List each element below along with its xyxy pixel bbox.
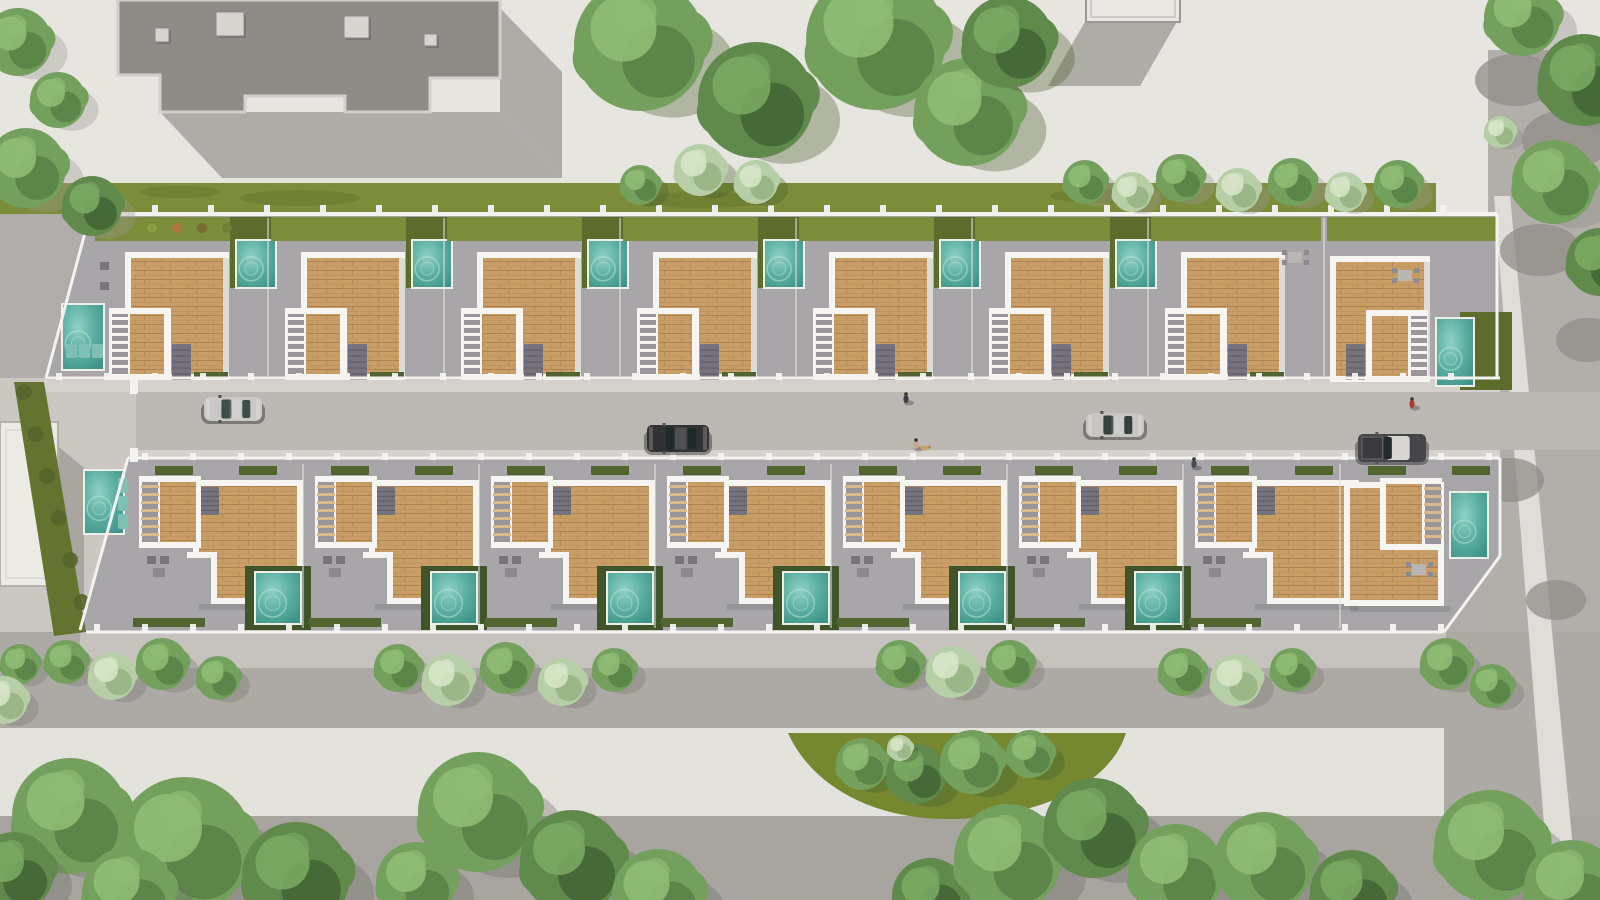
car-hood-highlight [1088, 415, 1092, 435]
tree-canopy-light [0, 840, 24, 864]
ladder-rung [1197, 493, 1215, 496]
ladder-rung [111, 317, 129, 320]
deck-shadow [575, 258, 581, 374]
ladder-rung [1424, 511, 1442, 514]
rooftop-box [216, 12, 244, 36]
truck-bed [1362, 437, 1382, 459]
fence-post [584, 373, 590, 380]
ladder-rung [493, 533, 511, 536]
fence-post [728, 373, 734, 380]
car-rear-window [688, 428, 696, 449]
car-trunk-highlight [1138, 415, 1142, 435]
patio-furniture [147, 556, 156, 564]
fence-post [1198, 453, 1204, 460]
fence-post [1104, 205, 1110, 212]
wing-deck [306, 314, 340, 374]
fence-post [286, 624, 292, 631]
tree-canopy-light [402, 850, 426, 874]
person-body [913, 441, 918, 449]
ladder-rung [669, 509, 687, 512]
fence-post [56, 373, 62, 380]
tree-canopy-light [642, 858, 670, 886]
fence-post [1208, 373, 1214, 380]
planting [197, 223, 207, 233]
ladder-rung [141, 533, 159, 536]
patio-furniture [1027, 556, 1036, 564]
ladder-rung [141, 509, 159, 512]
tree-canopy-light [1227, 659, 1243, 675]
ladder-rung [845, 533, 863, 536]
tree-canopy-light [1568, 43, 1596, 71]
ladder-rung [639, 365, 657, 368]
deck-shadow [1279, 258, 1285, 374]
planting [147, 223, 157, 233]
person-body [903, 395, 908, 403]
ladder-rung [1197, 501, 1215, 504]
fence-post [776, 373, 782, 380]
deck-shadow [399, 258, 405, 374]
ladder-rung [317, 493, 335, 496]
fence-post [872, 373, 878, 380]
ladder-rung [639, 357, 657, 360]
tree-canopy-light [1337, 858, 1362, 883]
planter [1452, 466, 1490, 475]
fence-post [334, 624, 340, 631]
fence-post [488, 205, 494, 212]
planter [943, 466, 981, 475]
tree-canopy-light [554, 820, 585, 851]
ladder-rung [1410, 327, 1428, 330]
planter [155, 466, 193, 475]
person-head [904, 392, 908, 396]
tree-canopy-light [13, 648, 25, 660]
ladder-rung [845, 525, 863, 528]
ladder-rung [317, 533, 335, 536]
ladder-rung [669, 525, 687, 528]
fence-post [430, 624, 436, 631]
person-body [1191, 460, 1196, 468]
tree-canopy-light [12, 136, 36, 160]
ladder-rung [1167, 333, 1185, 336]
car-roof-highlight [230, 400, 242, 419]
ladder-rung [991, 365, 1009, 368]
fence-post [152, 205, 158, 212]
patio-furniture [100, 262, 109, 270]
pool-lounger [118, 496, 128, 511]
fence-post [862, 624, 868, 631]
fence-post [910, 624, 916, 631]
wing-deck [482, 314, 516, 374]
patio-table [1288, 252, 1302, 263]
tree-canopy-light [736, 54, 771, 89]
patio-furniture [675, 556, 684, 564]
ladder-rung [287, 357, 305, 360]
fence-post [632, 373, 638, 380]
planter [1119, 466, 1157, 475]
patio-furniture [499, 556, 508, 564]
patio-furniture [512, 556, 521, 564]
car-roof-highlight [1112, 416, 1124, 435]
tree-canopy-light [50, 770, 85, 805]
fence-post [1016, 373, 1022, 380]
wing-deck [688, 482, 724, 542]
patio-chair [1282, 260, 1287, 265]
fence-post [1048, 205, 1054, 212]
zone-sidewalk-top [44, 378, 1500, 392]
ladder-rung [1197, 533, 1215, 536]
car-trunk-highlight [703, 427, 707, 450]
ladder-rung [317, 485, 335, 488]
ladder-rung [815, 333, 833, 336]
tree-canopy-light [457, 764, 493, 800]
car-mirror [218, 420, 221, 423]
ladder-rung [463, 333, 481, 336]
fence-post [344, 373, 350, 380]
fence-post [1440, 205, 1446, 212]
car-rear-window [1124, 416, 1132, 434]
fence-post [238, 624, 244, 631]
ladder-rung [493, 493, 511, 496]
wing-deck [160, 482, 196, 542]
car-windshield [1384, 437, 1392, 459]
fence-post [1150, 453, 1156, 460]
ladder-rung [463, 357, 481, 360]
fence-post [1246, 453, 1252, 460]
fence-post [478, 624, 484, 631]
deck-notch [187, 558, 211, 604]
tree-canopy-light [606, 652, 619, 665]
ladder-rung [463, 325, 481, 328]
tree-canopy-light [895, 738, 903, 746]
fence-post [104, 373, 110, 380]
hedge-blob [16, 384, 32, 400]
patio-chair [1414, 278, 1419, 283]
fence-post [208, 205, 214, 212]
tree-canopy-light [633, 169, 645, 181]
fence-post [814, 624, 820, 631]
tree-canopy-light [554, 663, 568, 677]
ladder-rung [1021, 533, 1039, 536]
ladder-rung [1021, 485, 1039, 488]
deck-shadow [1350, 606, 1450, 612]
fence-post [1294, 624, 1300, 631]
pool-lounger [118, 514, 128, 529]
planting [172, 223, 182, 233]
tree-canopy-light [161, 791, 202, 832]
patio-furniture [851, 556, 860, 564]
tree-canopy-light [989, 815, 1021, 847]
ladder-rung [669, 485, 687, 488]
deck-shadow [223, 258, 229, 374]
patio-furniture [336, 556, 345, 564]
ladder-rung [669, 517, 687, 520]
fence-post [152, 373, 158, 380]
fence-post [622, 624, 628, 631]
planter [1295, 466, 1333, 475]
car-silver-2 [1083, 411, 1147, 440]
planter [1013, 618, 1085, 627]
car-trunk-highlight [256, 399, 260, 419]
ladder-rung [1410, 351, 1428, 354]
fence-post [382, 624, 388, 631]
ladder-rung [1410, 359, 1428, 362]
ladder-rung [815, 317, 833, 320]
car-mirror [1100, 436, 1103, 439]
fence-post [718, 624, 724, 631]
tree-canopy-light [892, 645, 906, 659]
fence-post [94, 624, 100, 631]
fence-post [1390, 624, 1396, 631]
planter [591, 466, 629, 475]
wing-deck [336, 482, 372, 542]
ladder-rung [493, 501, 511, 504]
fence-post [1438, 453, 1444, 460]
ladder-rung [493, 485, 511, 488]
tree-canopy-light [961, 736, 980, 755]
tree-canopy-light [1555, 850, 1584, 879]
dog-body [921, 446, 930, 451]
ladder-rung [463, 365, 481, 368]
ladder-rung [1167, 325, 1185, 328]
ladder-rung [1424, 503, 1442, 506]
tree-canopy-light [48, 78, 65, 95]
ladder-rung [1021, 493, 1039, 496]
patio-furniture [1216, 556, 1225, 564]
patio-table [1209, 568, 1221, 577]
fence-post [936, 205, 942, 212]
patio-table [505, 568, 517, 577]
ladder-rung [1167, 341, 1185, 344]
fence-post [910, 453, 916, 460]
wing-deck [864, 482, 900, 542]
ladder-rung [287, 365, 305, 368]
planter [1368, 466, 1406, 475]
ladder-rung [1410, 367, 1428, 370]
fence-post [526, 624, 532, 631]
fence-post [190, 624, 196, 631]
ladder-rung [639, 341, 657, 344]
fence-post [766, 453, 772, 460]
fence-post [334, 453, 340, 460]
wing-deck [130, 314, 164, 374]
ladder-rung [141, 525, 159, 528]
patio-chair [1414, 268, 1419, 273]
fence-post [600, 205, 606, 212]
fence-post [264, 205, 270, 212]
ladder-rung [1424, 527, 1442, 530]
ladder-rung [845, 485, 863, 488]
fence-post [968, 373, 974, 380]
tree-canopy-light [6, 15, 26, 35]
fence-post [488, 373, 494, 380]
tree-canopy-light [58, 644, 71, 657]
hedge-blob [39, 468, 55, 484]
fence-post [670, 624, 676, 631]
ladder-rung [287, 333, 305, 336]
deck-shadow [1103, 258, 1109, 374]
fence-post [1294, 453, 1300, 460]
pool [62, 304, 104, 370]
fence-post [1054, 624, 1060, 631]
tree-canopy-light [210, 660, 223, 673]
fence-post [1304, 373, 1310, 380]
car-rear-window [242, 400, 250, 418]
planting [222, 223, 232, 233]
grass-spot [140, 186, 220, 198]
kiosk-building [1086, 0, 1180, 22]
tree-canopy-light [1338, 176, 1350, 188]
scene [0, 0, 1600, 900]
fence-post [1102, 453, 1108, 460]
car-hood-highlight [649, 427, 653, 450]
tree-canopy-light [1172, 159, 1186, 173]
ladder-rung [287, 341, 305, 344]
tree-canopy-light [1077, 164, 1090, 177]
planter [1211, 466, 1249, 475]
tree-canopy-light [943, 651, 959, 667]
patio-chair [1428, 572, 1433, 577]
fence-post [142, 624, 148, 631]
patio-table [153, 568, 165, 577]
ladder-rung [815, 349, 833, 352]
ladder-rung [1197, 509, 1215, 512]
tree-canopy-light [853, 743, 869, 759]
deck-notch [715, 558, 739, 604]
ladder-rung [463, 349, 481, 352]
patio-chair [1406, 562, 1411, 567]
ladder-rung [639, 333, 657, 336]
car-mirror [663, 451, 666, 454]
tree-canopy-light [104, 657, 118, 671]
car-mirror [218, 395, 221, 398]
fence-post [920, 373, 926, 380]
tree-canopy-light [748, 164, 761, 177]
fence-post [574, 453, 580, 460]
patio-furniture [323, 556, 332, 564]
pool-lounger [92, 344, 103, 358]
lot-grass [1151, 217, 1321, 241]
ladder-rung [1021, 517, 1039, 520]
tree-canopy-light [1174, 653, 1188, 667]
tree-canopy-light [1437, 643, 1453, 659]
fence-post [1342, 453, 1348, 460]
person-head [914, 438, 918, 442]
fence-post [1342, 624, 1348, 631]
fence-post [824, 205, 830, 212]
fence-post [320, 205, 326, 212]
ladder-rung [639, 317, 657, 320]
patio-table [1412, 564, 1426, 575]
fence-post [376, 205, 382, 212]
tree-canopy-light [1484, 668, 1497, 681]
ladder-rung [287, 325, 305, 328]
fence-post [526, 453, 532, 460]
tree-canopy-light [153, 643, 169, 659]
ladder-rung [991, 357, 1009, 360]
planter [331, 466, 369, 475]
ladder-rung [815, 365, 833, 368]
patio-table [1033, 568, 1045, 577]
tree-canopy-light [1230, 172, 1243, 185]
ladder-rung [669, 501, 687, 504]
car-silver-1 [201, 395, 265, 424]
planter [309, 618, 381, 627]
fence-post [142, 453, 148, 460]
patio-furniture [1040, 556, 1049, 564]
ladder-rung [1021, 509, 1039, 512]
fence-post [1006, 453, 1012, 460]
grass-spot [240, 190, 360, 206]
patio-chair [1304, 260, 1309, 265]
planter [485, 618, 557, 627]
fence-post [574, 624, 580, 631]
fence-post [1054, 453, 1060, 460]
deck-shadow [1255, 604, 1359, 610]
apartment-shadow [160, 112, 562, 178]
tree-canopy-light [1247, 822, 1277, 852]
ladder-rung [991, 349, 1009, 352]
ladder-rung [463, 317, 481, 320]
ladder-rung [1424, 535, 1442, 538]
fence-post [958, 453, 964, 460]
gate-pillar [130, 380, 138, 394]
fence-post [958, 624, 964, 631]
ladder-rung [141, 501, 159, 504]
fence-post [814, 453, 820, 460]
fence-post [432, 205, 438, 212]
wing-deck [658, 314, 692, 374]
wing-deck [1186, 314, 1220, 374]
tree-canopy-light [112, 856, 140, 884]
patio-chair [1392, 278, 1397, 283]
wing-deck [834, 314, 868, 374]
fence-post [1272, 205, 1278, 212]
ladder-rung [287, 317, 305, 320]
car-hood-highlight [206, 399, 210, 419]
fence-post [1400, 373, 1406, 380]
fence-post [1102, 624, 1108, 631]
car-mirror [1100, 411, 1103, 414]
deck-notch [363, 558, 387, 604]
fence-post [1438, 624, 1444, 631]
fence-post [1216, 205, 1222, 212]
patio-chair [1282, 250, 1287, 255]
ladder-rung [991, 333, 1009, 336]
tree-canopy-light [1284, 652, 1297, 665]
ladder-rung [1410, 343, 1428, 346]
tree-canopy-light [1077, 788, 1107, 818]
fence-post [1160, 205, 1166, 212]
rooftop-box [424, 34, 437, 46]
ladder-rung [111, 365, 129, 368]
patio-table [329, 568, 341, 577]
ladder-rung [317, 517, 335, 520]
deck-notch [891, 558, 915, 604]
planter [837, 618, 909, 627]
ladder-rung [287, 349, 305, 352]
deck-notch [1067, 558, 1091, 604]
hedge-blob [28, 426, 44, 442]
planter [415, 466, 453, 475]
fence-post [1352, 373, 1358, 380]
ladder-rung [669, 493, 687, 496]
fence-post [544, 205, 550, 212]
tree-canopy-light [992, 5, 1020, 33]
tree-canopy-light [1125, 176, 1137, 188]
fence-post [238, 453, 244, 460]
fence-post [680, 373, 686, 380]
planter [507, 466, 545, 475]
